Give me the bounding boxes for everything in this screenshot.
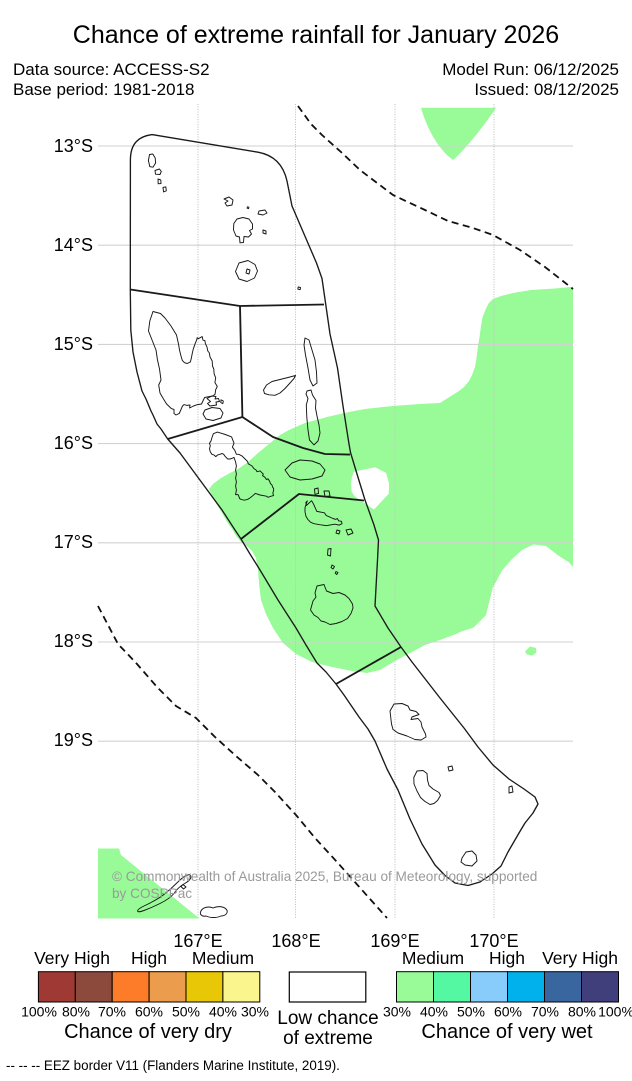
svg-text:Chance of very wet: Chance of very wet (421, 1021, 593, 1043)
svg-text:-- -- -- EEZ border V11 (Fla: -- -- -- EEZ border V11 (Flanders Marine… (6, 1058, 340, 1073)
svg-text:of extreme: of extreme (283, 1028, 373, 1049)
svg-text:13°S: 13°S (54, 136, 93, 156)
svg-text:Model Run: 06/12/2025: Model Run: 06/12/2025 (442, 60, 619, 79)
svg-text:© Commonwealth of Australia 20: © Commonwealth of Australia 2025, Bureau… (112, 869, 537, 884)
svg-text:80%: 80% (62, 1004, 90, 1020)
svg-text:50%: 50% (172, 1004, 200, 1020)
svg-text:18°S: 18°S (54, 631, 93, 651)
svg-text:by COSPPac: by COSPPac (112, 886, 192, 901)
svg-text:168°E: 168°E (271, 931, 320, 951)
svg-text:Chance of very dry: Chance of very dry (64, 1021, 232, 1043)
svg-text:19°S: 19°S (54, 730, 93, 750)
svg-text:Issued: 08/12/2025: Issued: 08/12/2025 (474, 80, 619, 99)
svg-text:Medium: Medium (402, 948, 464, 968)
svg-text:70%: 70% (531, 1004, 559, 1020)
svg-text:60%: 60% (494, 1004, 522, 1020)
svg-text:Low chance: Low chance (277, 1008, 378, 1029)
svg-text:30%: 30% (383, 1004, 411, 1020)
svg-text:Base period: 1981-2018: Base period: 1981-2018 (13, 80, 194, 99)
svg-text:High: High (489, 948, 525, 968)
svg-text:Very High: Very High (34, 948, 110, 968)
svg-text:15°S: 15°S (54, 334, 93, 354)
svg-text:Medium: Medium (192, 948, 254, 968)
svg-text:40%: 40% (209, 1004, 237, 1020)
svg-text:40%: 40% (420, 1004, 448, 1020)
svg-text:70%: 70% (98, 1004, 126, 1020)
svg-text:100%: 100% (21, 1004, 57, 1020)
svg-text:14°S: 14°S (54, 235, 93, 255)
svg-text:60%: 60% (135, 1004, 163, 1020)
svg-text:Data source: ACCESS-S2: Data source: ACCESS-S2 (13, 60, 210, 79)
svg-text:100%: 100% (598, 1004, 632, 1020)
svg-text:16°S: 16°S (54, 433, 93, 453)
svg-text:80%: 80% (568, 1004, 596, 1020)
svg-text:50%: 50% (457, 1004, 485, 1020)
svg-text:High: High (131, 948, 167, 968)
svg-text:Chance of extreme rainfall for: Chance of extreme rainfall for January 2… (73, 21, 559, 49)
svg-text:30%: 30% (241, 1004, 269, 1020)
svg-text:17°S: 17°S (54, 532, 93, 552)
svg-text:Very High: Very High (542, 948, 618, 968)
